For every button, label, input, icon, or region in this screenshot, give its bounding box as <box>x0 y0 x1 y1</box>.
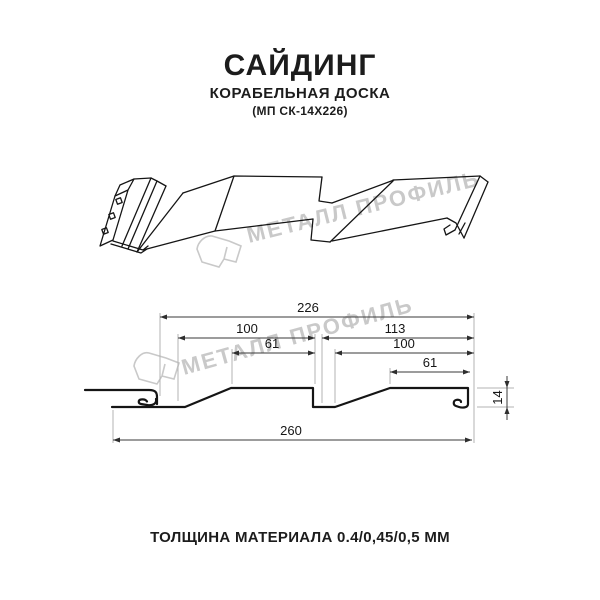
dimension-61-right: 61 <box>390 355 470 375</box>
technical-drawing: МЕТАЛЛ ПРОФИЛЬ МЕТАЛЛ ПРОФИЛЬ <box>0 0 600 600</box>
profile-outline <box>85 388 468 408</box>
brand-logo-icon <box>197 236 241 267</box>
lock-channel <box>111 178 166 253</box>
nail-strip <box>100 179 134 246</box>
nail-hole <box>109 213 115 219</box>
material-thickness-note: ТОЛЩИНА МАТЕРИАЛА 0.4/0,45/0,5 ММ <box>0 529 600 546</box>
dimension-100-right: 100 <box>335 336 474 356</box>
product-diagram-page: САЙДИНГ КОРАБЕЛЬНАЯ ДОСКА (МП СК-14Х226)… <box>0 0 600 600</box>
svg-text:100: 100 <box>393 336 415 351</box>
watermark-top: МЕТАЛЛ ПРОФИЛЬ <box>197 166 482 267</box>
brand-logo-icon <box>134 353 179 384</box>
svg-text:14: 14 <box>490 390 505 404</box>
svg-text:100: 100 <box>236 321 258 336</box>
dimension-260: 260 <box>113 423 472 443</box>
dimension-226: 226 <box>160 300 474 320</box>
svg-text:61: 61 <box>423 355 437 370</box>
svg-text:226: 226 <box>297 300 319 315</box>
svg-text:61: 61 <box>265 336 279 351</box>
dimension-14: 14 <box>490 376 510 420</box>
nail-hole <box>116 198 122 204</box>
svg-text:260: 260 <box>280 423 302 438</box>
svg-text:113: 113 <box>385 321 406 336</box>
